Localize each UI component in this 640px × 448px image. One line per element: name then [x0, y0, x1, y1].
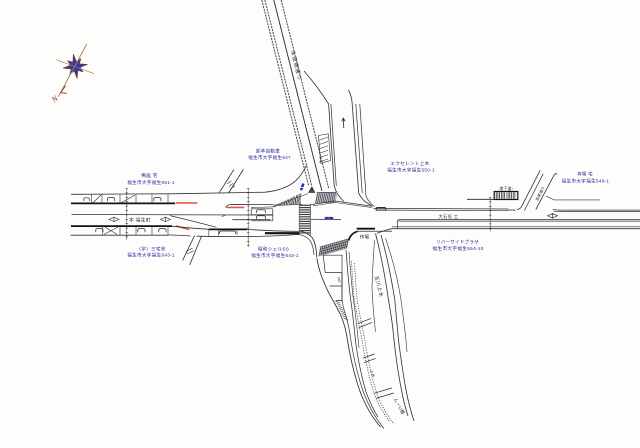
svg-text:斉場 宅: 斉場 宅 — [577, 170, 593, 177]
svg-text:福生市大字福生651-1: 福生市大字福生651-1 — [127, 179, 175, 186]
svg-text:地下道↑: 地下道↑ — [499, 186, 513, 191]
svg-text:大石垣 工: 大石垣 工 — [439, 213, 459, 220]
svg-text:昭和シェルSS: 昭和シェルSS — [258, 246, 289, 253]
svg-text:福生市大字福生554-10: 福生市大字福生554-10 — [432, 245, 483, 252]
svg-text:福生市大字福生643-1: 福生市大字福生643-1 — [251, 252, 299, 259]
svg-text:エクセレント上木: エクセレント上木 — [390, 160, 429, 167]
svg-text:〈学〉三宅堂: 〈学〉三宅堂 — [136, 245, 165, 251]
svg-text:福生市大字福生550-1: 福生市大字福生550-1 — [387, 166, 435, 173]
svg-text:字 福生町: 字 福生町 — [129, 217, 151, 224]
svg-text:卸本自動車: 卸本自動車 — [256, 148, 280, 155]
svg-text:福生市大字福生643-1: 福生市大字福生643-1 — [127, 252, 175, 259]
svg-text:福生市大字福生549-1: 福生市大字福生549-1 — [562, 177, 610, 184]
svg-text:鴨居 宅: 鴨居 宅 — [141, 172, 157, 179]
svg-text:福生市大字福生647: 福生市大字福生647 — [248, 154, 291, 161]
svg-text:作場: 作場 — [360, 234, 370, 241]
